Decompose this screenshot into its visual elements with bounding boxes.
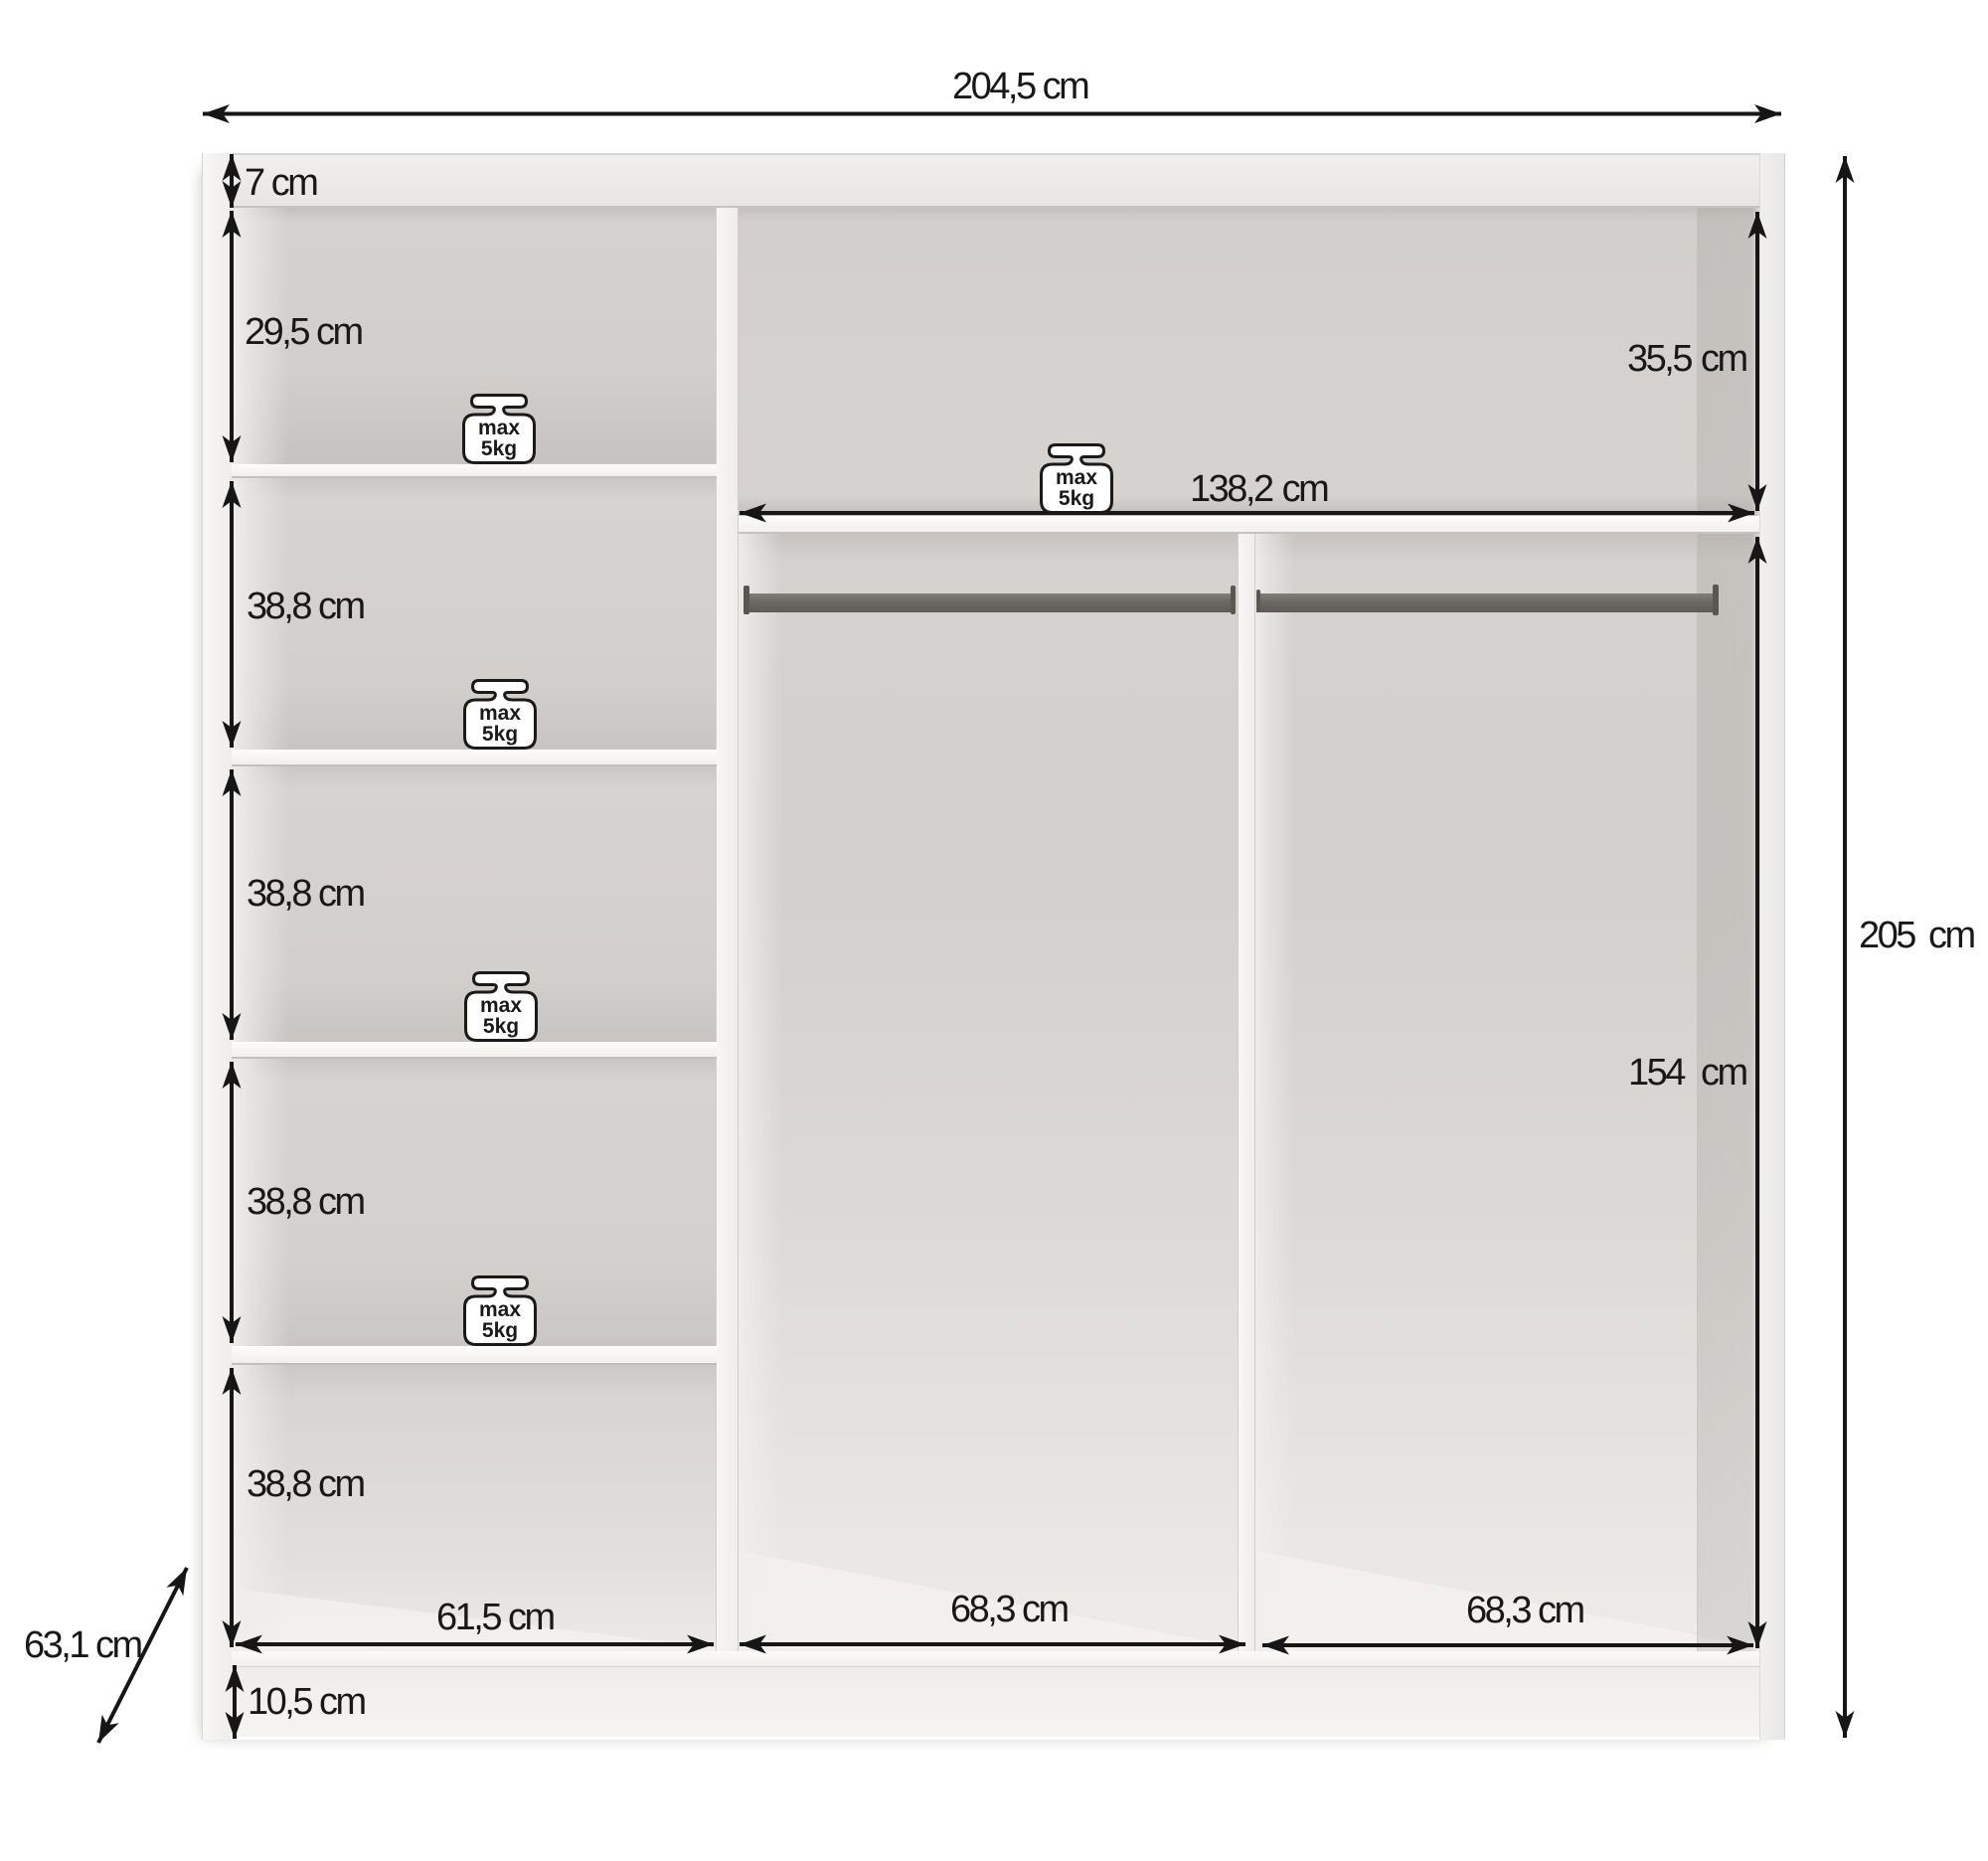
svg-text:max: max	[1056, 466, 1097, 489]
svg-text:5kg: 5kg	[1059, 487, 1094, 510]
svg-text:max: max	[480, 994, 522, 1017]
svg-text:max: max	[478, 417, 520, 439]
svg-text:5kg: 5kg	[481, 437, 517, 460]
svg-text:5kg: 5kg	[482, 1319, 518, 1342]
svg-text:5kg: 5kg	[483, 1015, 519, 1038]
svg-text:5kg: 5kg	[482, 723, 518, 746]
svg-text:max: max	[479, 702, 521, 725]
svg-text:max: max	[479, 1298, 521, 1321]
